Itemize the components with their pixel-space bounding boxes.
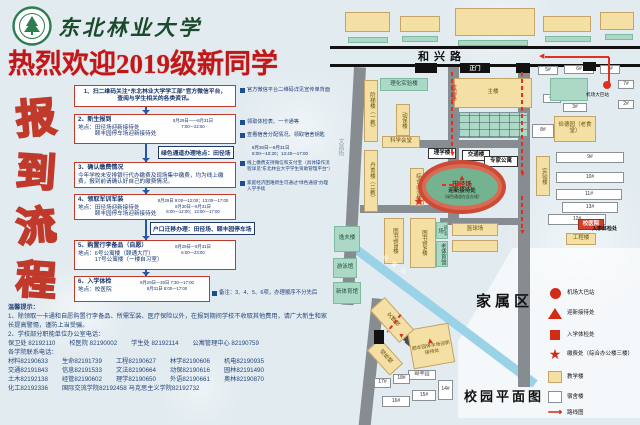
building: 10# bbox=[556, 172, 624, 183]
legend-label: 机场大巴站 bbox=[567, 290, 640, 297]
building-label: 动保楼 bbox=[400, 112, 406, 129]
campus-gate bbox=[583, 62, 596, 71]
route-line bbox=[545, 56, 609, 58]
note-text: 官方微信平台二维码详见宣传单背面 bbox=[247, 87, 330, 94]
building-label: 14# bbox=[441, 387, 449, 392]
route-arrowhead-icon: ▼ bbox=[519, 171, 526, 178]
legend-label: 迎新接待处 bbox=[567, 310, 640, 317]
college-phones: 材料82190633生命82191739工程82190627林学82190606… bbox=[8, 358, 328, 394]
route-line bbox=[442, 184, 458, 186]
campus-gate bbox=[415, 63, 437, 73]
route-arrowhead-icon: ▼ bbox=[519, 229, 526, 236]
note-text: 家庭经济困难新生可通过“绿色通道”办理入学手续 bbox=[247, 180, 332, 191]
building-label: 13# bbox=[586, 205, 594, 210]
legend-item: 机场大巴站 bbox=[548, 288, 640, 299]
map-label: 家属区 bbox=[476, 290, 533, 311]
building-label: 俭德园（老食堂） bbox=[555, 123, 595, 135]
dept-phone: 公寓管理中心 82190759 bbox=[193, 340, 259, 349]
tips-item: 2、学校部分职能单位办公室电话： bbox=[8, 331, 328, 340]
vertical-title-char: 程 bbox=[8, 252, 64, 309]
map-label: 入学体检处 bbox=[592, 225, 617, 232]
building: 16# bbox=[382, 396, 410, 407]
building: 颐丰园 bbox=[408, 370, 436, 380]
payment-star-icon: ★ bbox=[414, 197, 424, 207]
map-label: 机场大巴站 bbox=[586, 92, 609, 98]
dept-phone: 学生处 82192114 bbox=[131, 340, 178, 349]
route-arrowhead-icon: ▶ bbox=[457, 181, 462, 188]
legend-label: 入学体检处 bbox=[567, 332, 640, 339]
college-phone: 园林82191490 bbox=[224, 367, 276, 376]
bullet-square-icon bbox=[240, 181, 245, 186]
route-arrowhead-icon: ◀ bbox=[539, 53, 544, 60]
flow-step: 4、领取军训军装地点：田径场迎新接待处 颐丰园停车场迎新接待处8月29日 9:0… bbox=[74, 194, 236, 220]
airport-bus-dot-icon bbox=[603, 81, 611, 89]
college-phone: 交通82191843 bbox=[8, 367, 60, 376]
building: 9# bbox=[556, 152, 624, 163]
building-block bbox=[400, 16, 440, 32]
building-block bbox=[345, 12, 390, 32]
legend-circle-icon bbox=[548, 288, 562, 299]
note-item: 备注：3、4、5、6项，办理顺序不分先后 bbox=[212, 290, 332, 297]
tips-title: 温馨提示： bbox=[8, 304, 328, 313]
legend-dorm-icon bbox=[548, 391, 562, 403]
note-item: 官方微信平台二维码详见宣传单背面 bbox=[240, 87, 332, 94]
flow-step: 1、扫二维码关注“东北林业大学学工部”官方微信平台， 查阅与学生相关的各类资讯。 bbox=[74, 85, 236, 107]
building-label: 专家公寓 bbox=[490, 159, 512, 165]
map-label: 文昌街 bbox=[336, 138, 345, 156]
route-arrowhead-icon: ▼ bbox=[449, 151, 456, 158]
map-label: 校园路 bbox=[449, 84, 457, 101]
building-label: 成栋楼 bbox=[377, 349, 392, 365]
building-label: 2# bbox=[623, 102, 629, 107]
college-phone: 机电82190935 bbox=[224, 358, 276, 367]
building-label: 9# bbox=[587, 155, 593, 160]
tips-block: 温馨提示： 1、除领取一卡通和自愿购置行李备品、所需军装、医疗保险以外，在报到期… bbox=[8, 304, 328, 394]
building-block bbox=[458, 40, 528, 46]
legend-square-glyph bbox=[550, 330, 560, 340]
building: 理化实验楼 bbox=[380, 78, 428, 91]
building-label: 颐丰园 bbox=[414, 372, 429, 377]
building-label: 主楼 bbox=[487, 90, 498, 96]
legend-label: 宿舍楼 bbox=[567, 394, 640, 401]
building-label: 10# bbox=[586, 175, 594, 180]
building-label: 工程楼 bbox=[573, 236, 590, 242]
dept-phone: 校医院 82190002 bbox=[69, 340, 117, 349]
building-block bbox=[600, 12, 634, 30]
building: 13# bbox=[562, 202, 618, 213]
building-label: 老体育馆 bbox=[439, 243, 445, 265]
building-block bbox=[452, 240, 498, 252]
flow-arrow-icon bbox=[145, 107, 147, 114]
building-label: 逸夫楼 bbox=[339, 236, 356, 242]
building-label: 颐丰园停车场迎新接待处 bbox=[411, 341, 452, 358]
track-green-channel-label: （绿色通道在此办理） bbox=[442, 195, 482, 200]
legend-item: 宿舍楼 bbox=[548, 391, 640, 403]
building: 动保楼 bbox=[396, 104, 410, 136]
college-phones-title: 各学院联系电话： bbox=[8, 349, 328, 358]
note-text: 查看宿舍分配情况，领取宿舍钥匙 bbox=[247, 132, 325, 139]
legend-route-icon: ⟶ bbox=[548, 408, 562, 418]
dept-phone: 保卫处 82192110 bbox=[8, 340, 55, 349]
welcome-title: 热烈欢迎2019级新同学 bbox=[8, 42, 332, 81]
building-label: 交通楼 bbox=[468, 153, 485, 159]
flow-step: 5、购置行李备品（自愿）地点：6号公寓楼（颐通大厅） 17号公寓楼（一楼自习室）… bbox=[74, 240, 236, 270]
map-label: 校园平面图 bbox=[464, 386, 544, 405]
building-label: 实验楼 bbox=[540, 168, 546, 185]
building-label: 5# bbox=[545, 68, 551, 73]
note-text: 领取体检表、一卡通等 bbox=[247, 119, 299, 126]
building-block bbox=[550, 78, 588, 101]
vertical-title-char: 到 bbox=[8, 144, 64, 201]
legend-item: 入学体检处 bbox=[548, 330, 640, 340]
flow-step: 3、确认缴费情况今年学校未安排银行代办缴费及现场集中缴费，均为线上缴费，报到前请… bbox=[74, 162, 236, 188]
flow-step-body: 今年学校未安排银行代办缴费及现场集中缴费，均为线上缴费，报到前请确认好自己的缴费… bbox=[78, 173, 232, 187]
building-block bbox=[545, 36, 591, 42]
college-phone: 马克思主义学院82192732 bbox=[129, 385, 200, 394]
building: 15# bbox=[412, 390, 436, 401]
building: 18# bbox=[393, 374, 410, 384]
legend-triangle-glyph bbox=[548, 308, 562, 319]
road bbox=[330, 46, 640, 49]
legend-item: ⟶路线图 bbox=[548, 408, 640, 418]
building: 2# bbox=[618, 100, 634, 109]
note-text: 线上缴费支持微信和支付宝（具体操作流程详见“东北林业大学学生资助管理平台”） bbox=[247, 160, 332, 171]
building: 17# bbox=[374, 378, 391, 388]
building: 丹青楼（二教） bbox=[364, 150, 378, 212]
building-label: 图书馆A楼 bbox=[420, 230, 426, 256]
flow-inline-box-time: 8月30日—8月31日 8:00—10:30；13:40—17:00 bbox=[252, 145, 308, 157]
building-label: 篮球场 bbox=[467, 227, 484, 233]
building-label: 6# bbox=[576, 67, 582, 72]
building: 俭德园（老食堂） bbox=[554, 116, 596, 142]
legend-item: ★缴费处（综合办公楼三楼） bbox=[548, 348, 640, 360]
building-label: 8# bbox=[540, 128, 546, 133]
college-phone: 理学82190650 bbox=[116, 376, 168, 385]
college-phone: 动保82190616 bbox=[170, 367, 222, 376]
college-phone: 材料82190633 bbox=[8, 358, 60, 367]
college-phone: 文法82190664 bbox=[116, 367, 168, 376]
tips-item: 1、除领取一卡通和自愿购置行李备品、所需军装、医疗保险以外，在报到期间学校不收取… bbox=[8, 313, 328, 331]
college-phone: 土木82192138 bbox=[8, 376, 60, 385]
building-label: 18# bbox=[397, 376, 405, 381]
college-phone: 国际交流学院82192458 bbox=[62, 385, 127, 394]
university-name: 东北林业大学 bbox=[58, 12, 202, 42]
building: 图书馆A楼 bbox=[410, 218, 436, 268]
building: 7# bbox=[618, 80, 634, 89]
building: 游泳馆 bbox=[333, 258, 357, 278]
legend-circle-glyph bbox=[550, 288, 561, 299]
legend-teach-icon bbox=[548, 371, 562, 383]
legend-item: 迎新接待处 bbox=[548, 308, 640, 319]
flow-arrow-icon bbox=[145, 188, 147, 194]
building-label: 3# bbox=[572, 105, 578, 110]
flow-arrow-icon bbox=[145, 270, 147, 276]
note-text: 备注：3、4、5、6项，办理顺序不分先后 bbox=[219, 290, 317, 297]
note-item: 线上缴费支持微信和支付宝（具体操作流程详见“东北林业大学学生资助管理平台”） bbox=[240, 160, 332, 171]
building-label: 丹青楼（二教） bbox=[368, 162, 374, 201]
building-block bbox=[458, 112, 528, 138]
department-phones: 保卫处 82192110校医院 82190002学生处 82192114公寓管理… bbox=[8, 340, 328, 349]
building: 11# bbox=[556, 189, 622, 200]
college-phone: 奥林82190870 bbox=[224, 376, 276, 385]
legend-label: 教学楼 bbox=[567, 374, 640, 381]
campus-map: 理化实验楼阶梯楼（一教）动保楼主楼科学会堂丹青楼（二教）理学楼交通楼专家公寓综合… bbox=[330, 0, 640, 425]
college-phone: 生命82191739 bbox=[62, 358, 114, 367]
college-phone: 林学82190606 bbox=[170, 358, 222, 367]
building: 14# bbox=[438, 380, 453, 400]
vertical-title-char: 报 bbox=[8, 90, 65, 148]
flow-arrow-icon bbox=[145, 144, 147, 162]
bullet-square-icon bbox=[240, 161, 245, 166]
building: 逸夫楼 bbox=[334, 226, 360, 252]
legend-item: 教学楼 bbox=[548, 371, 640, 383]
legend-dorm-glyph bbox=[548, 391, 562, 403]
building-label: 16# bbox=[392, 399, 400, 404]
route-line bbox=[608, 57, 610, 83]
building: 网球场 bbox=[436, 222, 448, 239]
note-item: 查看宿舍分配情况，领取宿舍钥匙 bbox=[240, 132, 332, 139]
note-item: 家庭经济困难新生可通过“绿色通道”办理入学手续 bbox=[240, 180, 332, 191]
campus-gate: 正门 bbox=[460, 63, 490, 73]
building-label: 科学会堂 bbox=[390, 139, 412, 145]
tips-items: 1、除领取一卡通和自愿购置行李备品、所需军装、医疗保险以外，在报到期间学校不收取… bbox=[8, 313, 328, 340]
building-label: 15# bbox=[420, 393, 428, 398]
flow-step: 2、新生报到地点：田径场迎新接待处 颐丰园停车场迎新接待处8月29日——8月31… bbox=[74, 114, 236, 144]
building-label: 图书馆B楼 bbox=[391, 228, 397, 254]
college-phone: 外语82190661 bbox=[170, 376, 222, 385]
building-block bbox=[605, 34, 633, 40]
building-block bbox=[455, 8, 535, 36]
campus-gate bbox=[374, 330, 384, 344]
legend-triangle-icon bbox=[548, 308, 562, 319]
college-phone: 信息82191533 bbox=[62, 367, 114, 376]
building: 实验楼 bbox=[536, 156, 550, 196]
flow-step-body: 1、扫二维码关注“东北林业大学学工部”官方微信平台， 查阅与学生相关的各类资讯。 bbox=[84, 89, 226, 103]
building-label: 17# bbox=[378, 380, 386, 385]
building: 工程楼 bbox=[566, 233, 596, 245]
flow-step-time: 8月29日——8月31日 7:00—22:00 bbox=[153, 118, 233, 129]
building-label: 11# bbox=[585, 192, 593, 197]
flow-step-time: 8月29日—30日 7:30—17:00 8月31日 8:00—17:00 bbox=[127, 280, 207, 291]
route-line bbox=[521, 72, 523, 174]
building-label: 网球场 bbox=[436, 223, 448, 238]
building: 8# bbox=[532, 124, 554, 138]
building-label: 理化实验楼 bbox=[390, 82, 418, 88]
note-item: 领取体检表、一卡通等 bbox=[240, 119, 332, 126]
building: 篮球场 bbox=[452, 223, 498, 236]
vertical-title: 报到流程 bbox=[10, 92, 62, 308]
flow-arrow-icon bbox=[145, 220, 147, 240]
campus-gate bbox=[516, 63, 530, 73]
building-block bbox=[402, 36, 438, 42]
flow-inline-box: 户口迁移办理：田径场、颐丰园停车场 bbox=[150, 222, 255, 235]
legend-square-icon bbox=[548, 330, 562, 340]
college-phone: 工程82190627 bbox=[116, 358, 168, 367]
legend-route-glyph: ⟶ bbox=[548, 408, 562, 418]
legend-teach-glyph bbox=[548, 371, 562, 383]
building: 3# bbox=[563, 103, 587, 112]
flow-inline-box: 绿色通道办理地点：田径场 bbox=[158, 146, 234, 159]
poster-page: 东北林业大学 热烈欢迎2019级新同学 报到流程 1、扫二维码关注“东北林业大学… bbox=[0, 0, 640, 425]
vertical-title-char: 流 bbox=[8, 198, 65, 256]
building: 1# bbox=[600, 65, 620, 74]
flow-step-time: 8月29日—8月31日 6:00—23:00 bbox=[153, 244, 233, 255]
building-label: 阶梯楼（一教） bbox=[368, 92, 374, 131]
flow-step-time: 8月29日 9:00—12:00；13:00—17:00 8月30日—8月31日… bbox=[153, 198, 233, 215]
university-logo-icon bbox=[12, 6, 52, 46]
building-label: 新体育馆 bbox=[336, 290, 358, 296]
building: 5# bbox=[538, 66, 558, 75]
route-line bbox=[521, 196, 523, 232]
building: 阶梯楼（一教） bbox=[364, 80, 378, 142]
bullet-square-icon bbox=[240, 88, 245, 93]
bullet-square-icon bbox=[212, 291, 217, 296]
building-label: 游泳馆 bbox=[337, 265, 354, 271]
bullet-square-icon bbox=[240, 133, 245, 138]
left-panel: 东北林业大学 热烈欢迎2019级新同学 报到流程 1、扫二维码关注“东北林业大学… bbox=[0, 0, 332, 425]
building-block bbox=[543, 16, 591, 32]
legend-label: 缴费处（综合办公楼三楼） bbox=[567, 351, 640, 358]
building: 新体育馆 bbox=[333, 282, 361, 304]
building: 老体育馆 bbox=[436, 241, 448, 267]
building-label: 7# bbox=[623, 82, 629, 87]
bullet-square-icon bbox=[240, 120, 245, 125]
legend-star-glyph: ★ bbox=[549, 348, 562, 360]
flow-step-heading: 3、确认缴费情况 bbox=[78, 165, 232, 173]
building: 科学会堂 bbox=[382, 136, 420, 148]
building-block bbox=[348, 37, 388, 43]
building-label: 理学楼 bbox=[434, 151, 451, 157]
map-label: 和兴路 bbox=[418, 48, 466, 64]
legend-label: 路线图 bbox=[567, 410, 640, 417]
college-phone: 化工82192336 bbox=[8, 385, 60, 394]
legend-star-icon: ★ bbox=[548, 348, 562, 360]
route-arrowhead-icon: ▼ bbox=[398, 333, 405, 340]
college-phone: 经管82190602 bbox=[62, 376, 114, 385]
